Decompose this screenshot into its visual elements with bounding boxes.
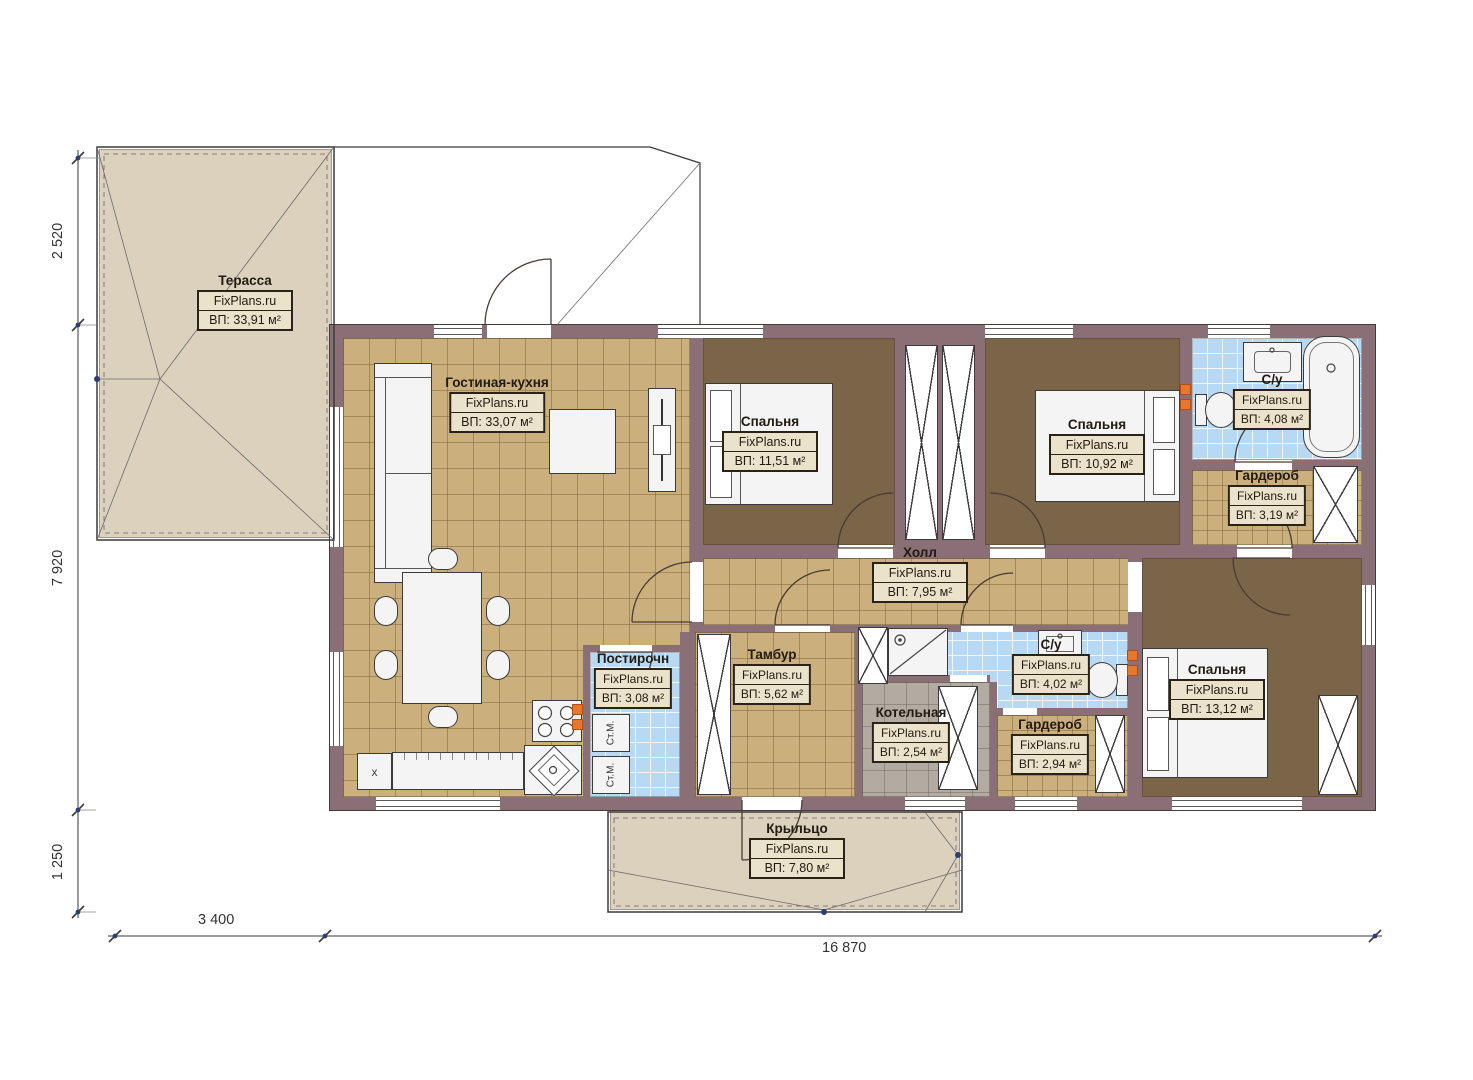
window xyxy=(1172,797,1302,810)
dimension-bottom-right: 16 870 xyxy=(822,940,866,956)
door-opening xyxy=(990,545,1045,558)
room-label-vestibule: Тамбур FixPlans.ru ВП: 5,62 м² xyxy=(733,648,811,705)
closet xyxy=(1313,466,1358,543)
sink-basin xyxy=(1254,351,1291,373)
dimension-bottom-left: 3 400 xyxy=(198,912,234,928)
floor-plan: x Ст.М. Ст.М. xyxy=(0,0,1473,1080)
toilet-bowl xyxy=(1086,662,1118,698)
door-opening xyxy=(775,625,830,632)
coffee-table xyxy=(549,409,616,474)
room-label-living: Гостиная-кухня FixPlans.ru ВП: 33,07 м² xyxy=(445,376,548,433)
watermark: FixPlans.ru xyxy=(735,666,809,685)
room-label-boiler: Котельная FixPlans.ru ВП: 2,54 м² xyxy=(872,706,950,763)
kitchen-counter xyxy=(392,752,524,790)
door-opening xyxy=(961,625,1013,632)
window xyxy=(1015,797,1077,810)
sofa xyxy=(374,363,432,583)
door-opening xyxy=(487,325,551,338)
watermark: FixPlans.ru xyxy=(1013,736,1087,755)
closet xyxy=(697,634,731,795)
room-label-terrace: Терасса FixPlans.ru ВП: 33,91 м² xyxy=(197,274,293,331)
pillow xyxy=(1153,449,1175,495)
chair xyxy=(486,650,510,680)
wall xyxy=(990,682,997,797)
kitchen-cabinet: x xyxy=(357,753,392,790)
dimension-left-bottom: 1 250 xyxy=(50,844,66,880)
window xyxy=(434,325,482,338)
room-label-bath2: С/у FixPlans.ru ВП: 4,02 м² xyxy=(1012,638,1090,695)
sofa-armrest-line xyxy=(375,568,431,569)
watermark: FixPlans.ru xyxy=(751,840,843,859)
vent-marker xyxy=(1127,665,1138,676)
door-opening xyxy=(950,675,987,682)
window xyxy=(376,797,500,810)
room-label-laundry: Постирочн FixPlans.ru ВП: 3,08 м² xyxy=(594,652,672,709)
watermark: FixPlans.ru xyxy=(199,292,291,311)
room-name: Спальня xyxy=(722,415,818,429)
wall xyxy=(1180,338,1192,545)
kitchen-cabinet-label: x xyxy=(372,765,378,779)
shower-tray xyxy=(888,628,948,676)
room-name: Спальня xyxy=(1049,418,1145,432)
washing-machine-label: Ст.М. xyxy=(606,721,617,746)
room-area: ВП: 10,92 м² xyxy=(1051,455,1143,473)
room-label-porch: Крыльцо FixPlans.ru ВП: 7,80 м² xyxy=(749,822,845,879)
chair xyxy=(374,596,398,626)
sofa-cushion-line xyxy=(385,473,431,474)
pillow xyxy=(1147,657,1169,711)
room-name: С/у xyxy=(1233,373,1311,387)
dimension-left-middle: 7 920 xyxy=(50,550,66,586)
door-opening xyxy=(1237,545,1292,558)
washing-machine: Ст.М. xyxy=(592,714,630,752)
window xyxy=(658,325,763,338)
room-label-wardrobe1: Гардероб FixPlans.ru ВП: 3,19 м² xyxy=(1228,469,1306,526)
vent-marker xyxy=(572,704,583,715)
room-area: ВП: 4,02 м² xyxy=(1014,675,1088,693)
window xyxy=(1208,325,1270,338)
room-name: Гардероб xyxy=(1011,718,1089,732)
chair xyxy=(374,650,398,680)
watermark: FixPlans.ru xyxy=(451,394,543,413)
room-name: Тамбур xyxy=(733,648,811,662)
room-name: Гардероб xyxy=(1228,469,1306,483)
room-name: Спальня xyxy=(1169,663,1265,677)
watermark: FixPlans.ru xyxy=(596,670,670,689)
room-label-bedroom1: Спальня FixPlans.ru ВП: 11,51 м² xyxy=(722,415,818,472)
room-area: ВП: 13,12 м² xyxy=(1171,700,1263,718)
watermark: FixPlans.ru xyxy=(724,433,816,452)
terrace-floor xyxy=(99,149,332,538)
watermark: FixPlans.ru xyxy=(874,564,966,583)
room-name: Терасса xyxy=(197,274,293,288)
room-name: Гостиная-кухня xyxy=(445,376,548,390)
room-area: ВП: 11,51 м² xyxy=(724,452,816,470)
room-area: ВП: 33,07 м² xyxy=(451,413,543,431)
bathtub xyxy=(1303,336,1360,458)
dining-table xyxy=(402,572,482,704)
tv-stand xyxy=(648,388,676,492)
window xyxy=(330,652,343,746)
room-area: ВП: 3,19 м² xyxy=(1230,506,1304,524)
window xyxy=(1362,585,1375,645)
toilet xyxy=(1084,660,1128,700)
bathtub-inner xyxy=(1309,342,1354,452)
watermark: FixPlans.ru xyxy=(1230,487,1304,506)
room-area: ВП: 3,08 м² xyxy=(596,689,670,707)
room-area: ВП: 7,80 м² xyxy=(751,859,843,877)
room-label-wardrobe2: Гардероб FixPlans.ru ВП: 2,94 м² xyxy=(1011,718,1089,775)
pillow xyxy=(1147,717,1169,771)
chair xyxy=(486,596,510,626)
door-opening xyxy=(1128,562,1142,612)
room-area: ВП: 7,95 м² xyxy=(874,583,966,601)
dimension-left-top: 2 520 xyxy=(50,223,66,259)
room-label-bedroom3: Спальня FixPlans.ru ВП: 13,12 м² xyxy=(1169,663,1265,720)
closet xyxy=(942,345,975,540)
room-name: Холл xyxy=(872,546,968,560)
room-area: ВП: 2,54 м² xyxy=(874,743,948,761)
door-opening xyxy=(742,797,802,810)
closet xyxy=(1318,695,1358,795)
room-area: ВП: 5,62 м² xyxy=(735,685,809,703)
room-area: ВП: 33,91 м² xyxy=(199,311,291,329)
chair xyxy=(428,706,458,728)
watermark: FixPlans.ru xyxy=(1051,436,1143,455)
room-name: Крыльцо xyxy=(749,822,845,836)
window xyxy=(330,407,343,547)
room-name: С/у xyxy=(1012,638,1090,652)
room-label-bath1: С/у FixPlans.ru ВП: 4,08 м² xyxy=(1233,373,1311,430)
closet xyxy=(858,627,888,684)
vent-marker xyxy=(1180,399,1191,410)
washing-machine-label: Ст.М. xyxy=(606,763,617,788)
room-area: ВП: 4,08 м² xyxy=(1235,410,1309,428)
watermark: FixPlans.ru xyxy=(1235,391,1309,410)
room-name: Постирочн xyxy=(594,652,672,666)
pillow xyxy=(1153,397,1175,443)
washing-machine: Ст.М. xyxy=(592,756,630,794)
vent-marker xyxy=(1127,650,1138,661)
closet xyxy=(905,345,938,540)
kitchen-sink-basin xyxy=(538,754,571,787)
wall xyxy=(680,632,695,797)
watermark: FixPlans.ru xyxy=(874,724,948,743)
vent-marker xyxy=(1180,384,1191,395)
vent-marker xyxy=(572,719,583,730)
room-label-bedroom2: Спальня FixPlans.ru ВП: 10,92 м² xyxy=(1049,418,1145,475)
wall xyxy=(583,652,590,797)
sofa-armrest-line xyxy=(375,377,431,378)
door-opening xyxy=(1003,708,1037,715)
window xyxy=(985,325,1073,338)
room-area: ВП: 2,94 м² xyxy=(1013,755,1087,773)
chair xyxy=(428,548,458,570)
room-label-hall: Холл FixPlans.ru ВП: 7,95 м² xyxy=(872,546,968,603)
watermark: FixPlans.ru xyxy=(1171,681,1263,700)
door-opening xyxy=(690,562,703,622)
closet xyxy=(1095,715,1125,793)
watermark: FixPlans.ru xyxy=(1014,656,1088,675)
tv-box xyxy=(653,425,671,455)
room-name: Котельная xyxy=(872,706,950,720)
window xyxy=(905,797,965,810)
